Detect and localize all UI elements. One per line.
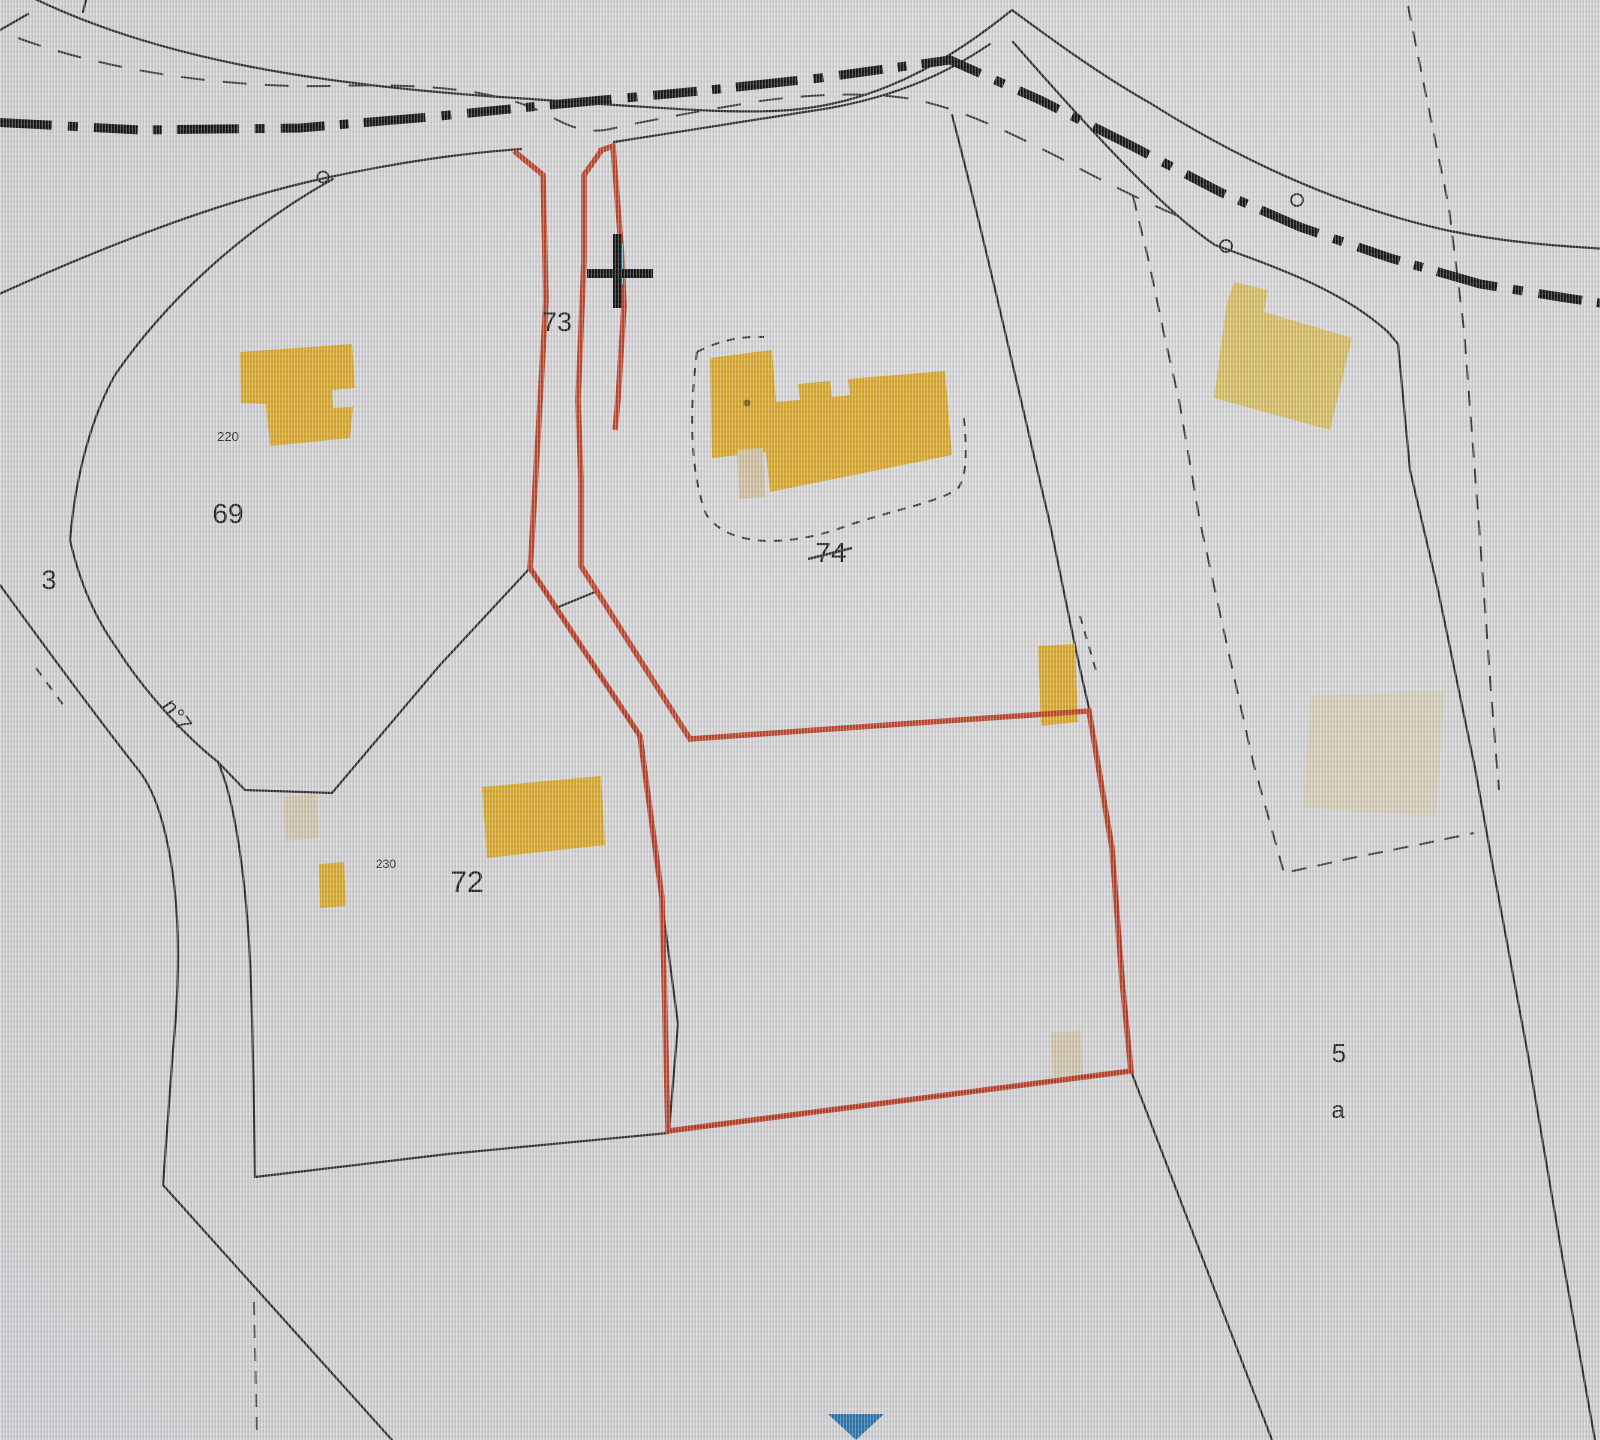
parcel-label-a[interactable]: a: [1331, 1097, 1345, 1124]
boundary-circle-icon: [1291, 194, 1303, 206]
road-lower-edge-left: [0, 149, 521, 296]
parcel-label-3[interactable]: 3: [41, 565, 56, 595]
east-boundary: [1013, 42, 1595, 1440]
building-in-selection-pale: [1051, 1031, 1083, 1077]
selected-parcel-outline[interactable]: [514, 146, 1131, 1131]
commune-limit-dashdot: [0, 60, 1600, 306]
building-parcel72-large: [482, 776, 605, 858]
building-northeast: [1214, 282, 1352, 430]
parcel-label-69[interactable]: 69: [212, 498, 243, 529]
building-parcel69: [240, 344, 355, 446]
building-dot: [744, 400, 751, 407]
parcel74-dashed-top: [697, 337, 764, 352]
road7-dashed-fragment: [36, 668, 64, 706]
parcel69-west-boundary: [70, 179, 333, 762]
edit-cursor-group: [587, 234, 653, 308]
building-label-220: 220: [217, 429, 239, 444]
cadastral-map: 73 69 220 3 n°7 230 72 74 5 a: [0, 0, 1600, 1440]
parcel-label-5[interactable]: 5: [1332, 1038, 1346, 1068]
building-parcel72-small: [319, 862, 346, 908]
building-parcel72-pale: [284, 794, 319, 841]
building-parcel74-annex: [737, 448, 765, 499]
dashed-fragment-east: [1080, 616, 1097, 674]
boundary-marker-circles: [318, 172, 1304, 253]
far-right-dashed-boundary: [1408, 6, 1499, 790]
boundary-circle-icon: [1220, 240, 1232, 252]
map-marker-triangle[interactable]: [828, 1414, 884, 1440]
parcel74-east-boundary: [952, 115, 1131, 1070]
selection-outline-main[interactable]: [514, 151, 1131, 1131]
selected-parcel-cadastral-boundary: [530, 568, 1272, 1440]
bottom-dashed-boundary: [254, 1302, 257, 1440]
map-labels: 73 69 220 3 n°7 230 72 74 5 a: [41, 307, 1346, 1124]
parcel-label-73[interactable]: 73: [542, 307, 572, 337]
parcel-label-72[interactable]: 72: [450, 866, 483, 899]
building-label-230: 230: [376, 857, 396, 871]
building-east-faint: [1303, 691, 1444, 816]
road-label-n7: n°7: [157, 694, 197, 736]
map-canvas[interactable]: 73 69 220 3 n°7 230 72 74 5 a: [0, 0, 1600, 1440]
buildings: [240, 282, 1444, 1077]
parcel69-72-divider: [218, 568, 530, 793]
crosshair-cursor-icon: [587, 234, 653, 308]
road7-west-edge: [0, 585, 392, 1440]
strip-cross-boundary: [556, 592, 595, 608]
